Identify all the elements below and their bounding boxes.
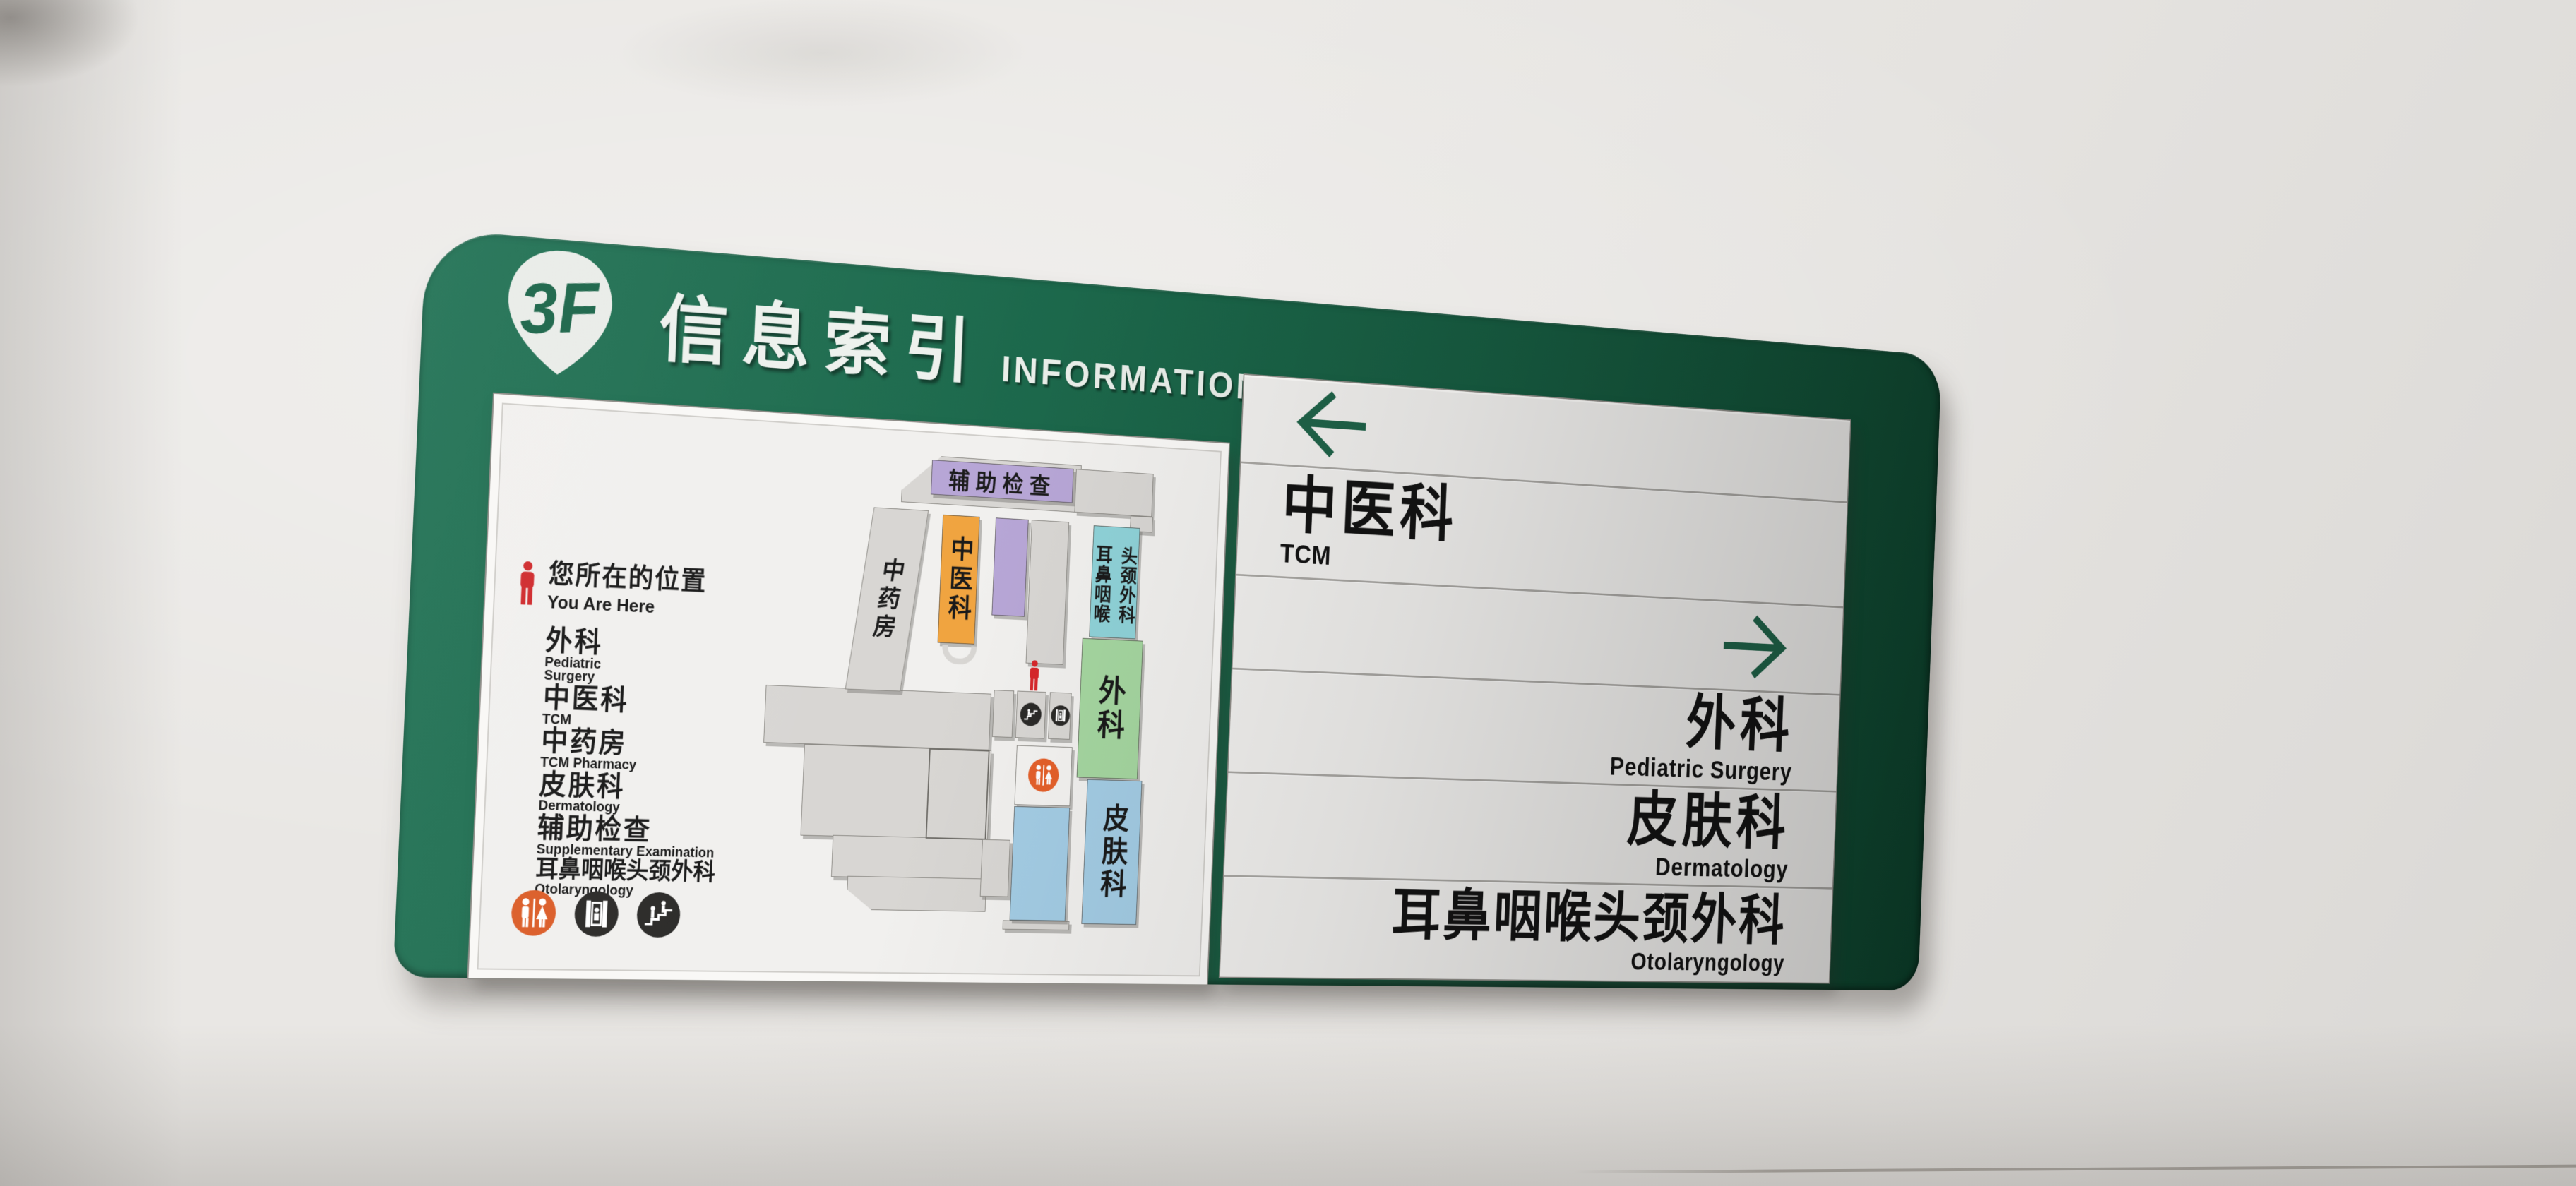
map-block-surgery: 外科 [1077, 638, 1143, 779]
elevator-icon [573, 890, 620, 938]
tile-elevator [1048, 692, 1071, 739]
map-block-tcm: 中医科 [938, 515, 980, 645]
legend-item: 辅助检查 Supplementary Examination [536, 815, 734, 861]
restroom-icon [510, 889, 558, 937]
directory-panel: 中医科 TCM 外科 Pediatric Surgery 皮肤科 Dermato… [1219, 373, 1851, 984]
wall-bottom-shadow [0, 1024, 2576, 1186]
legend-item: 中药房 TCM Pharmacy [540, 729, 738, 776]
sign-title-cn: 信息索引 [657, 269, 986, 397]
tile [992, 690, 1014, 738]
tile-escalator [1015, 690, 1046, 738]
you-are-here-person-icon [516, 559, 539, 608]
map-block-blue-unlabeled [1010, 806, 1071, 921]
floor-map-panel: 您所在的位置 You Are Here 外科 Pediatric Surgery… [467, 393, 1230, 986]
map-block-tcm-pharmacy: 中药房 [845, 507, 929, 691]
building-block [1003, 920, 1070, 930]
stairs-icon [636, 891, 682, 938]
map-you-are-here-person-icon [1027, 659, 1042, 692]
map-block-lavender [991, 517, 1028, 616]
wall-left-shadow [0, 0, 184, 1186]
map-legend: 您所在的位置 You Are Here 外科 Pediatric Surgery… [503, 559, 745, 900]
you-are-here-cn: 您所在的位置 [548, 561, 708, 596]
sign-title-en: INFORMATION [1001, 347, 1263, 409]
building-block [763, 685, 991, 750]
floor-plan: 辅助检查 中药房 中医科 [712, 419, 1226, 979]
floor-badge-icon: 3F [489, 241, 629, 388]
legend-item: 中医科 TCM [542, 685, 739, 733]
legend-list: 外科 Pediatric Surgery 中医科 TCM 中药房 TCM Pha… [503, 627, 742, 900]
map-escalator-icon [1020, 702, 1042, 727]
door-arc [941, 645, 977, 666]
floor-badge-label: 3F [518, 269, 603, 349]
information-sign-board: 3F 信息索引 INFORMATION 您所在的位置 You Are Here … [393, 228, 1942, 990]
room-outline [926, 748, 990, 840]
building-block [831, 835, 987, 880]
map-block-dermatology: 皮肤科 [1081, 779, 1142, 925]
you-are-here: 您所在的位置 You Are Here [516, 559, 746, 622]
arrow-left-icon [1284, 383, 1373, 465]
you-are-here-en: You Are Here [547, 591, 706, 620]
facility-icons [510, 889, 682, 938]
map-restroom-icon [1027, 757, 1060, 793]
arrow-right-icon [1717, 609, 1798, 685]
building-block [980, 839, 1010, 897]
building-block [1074, 469, 1153, 517]
building-block [846, 876, 986, 912]
directory-row-otolaryngology: 耳鼻咽喉头颈外科 Otolaryngology [1220, 877, 1832, 983]
corridor-block [1026, 520, 1070, 665]
map-elevator-icon [1051, 705, 1071, 726]
legend-item: 外科 Pediatric Surgery [544, 628, 742, 691]
map-block-ent: 耳鼻咽喉 头颈外科 [1089, 525, 1140, 639]
directory-row-dermatology: 皮肤科 Dermatology [1224, 773, 1836, 889]
wc-block [1014, 745, 1072, 807]
legend-item: 皮肤科 Dermatology [538, 772, 737, 818]
